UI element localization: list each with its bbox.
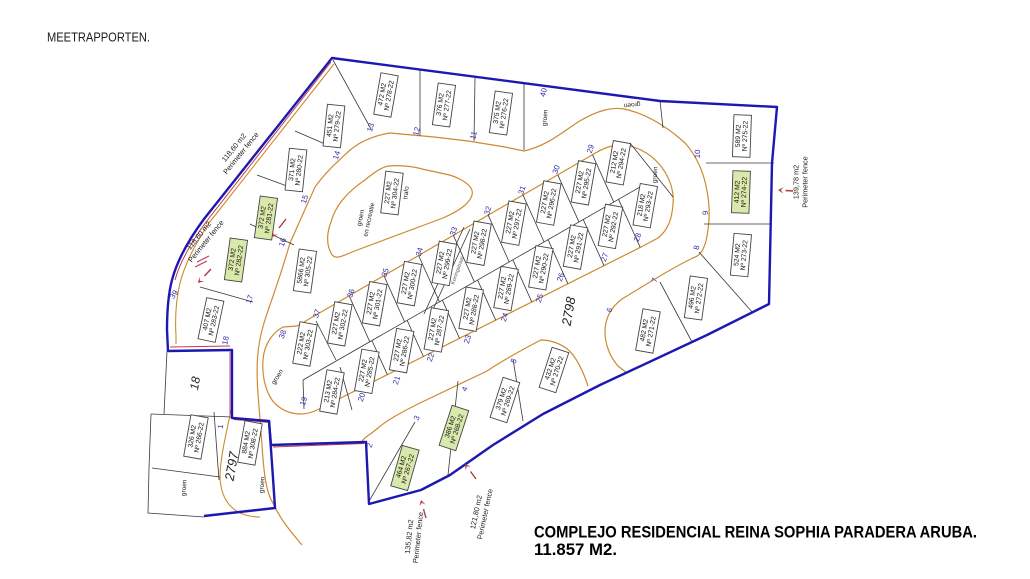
- svg-text:MEETRAPPORTEN.: MEETRAPPORTEN.: [47, 30, 150, 45]
- svg-text:9: 9: [701, 211, 710, 216]
- svg-text:Nº 274-22: Nº 274-22: [741, 177, 749, 208]
- svg-text:groen: groen: [541, 109, 549, 126]
- svg-text:groen: groen: [258, 476, 266, 493]
- svg-text:COMPLEJO RESIDENCIAL REINA SOP: COMPLEJO RESIDENCIAL REINA SOPHIA PARADE…: [534, 524, 977, 542]
- svg-text:Perimeter fence: Perimeter fence: [801, 156, 810, 208]
- svg-text:18: 18: [220, 335, 231, 345]
- svg-text:139,78 m2: 139,78 m2: [792, 165, 801, 199]
- svg-text:18: 18: [187, 375, 203, 391]
- svg-text:Nº 275-22: Nº 275-22: [742, 121, 750, 152]
- svg-text:groen: groen: [180, 479, 188, 496]
- svg-text:11.857 M2.: 11.857 M2.: [534, 541, 617, 559]
- svg-text:groen: groen: [652, 166, 660, 183]
- svg-text:10: 10: [693, 149, 702, 159]
